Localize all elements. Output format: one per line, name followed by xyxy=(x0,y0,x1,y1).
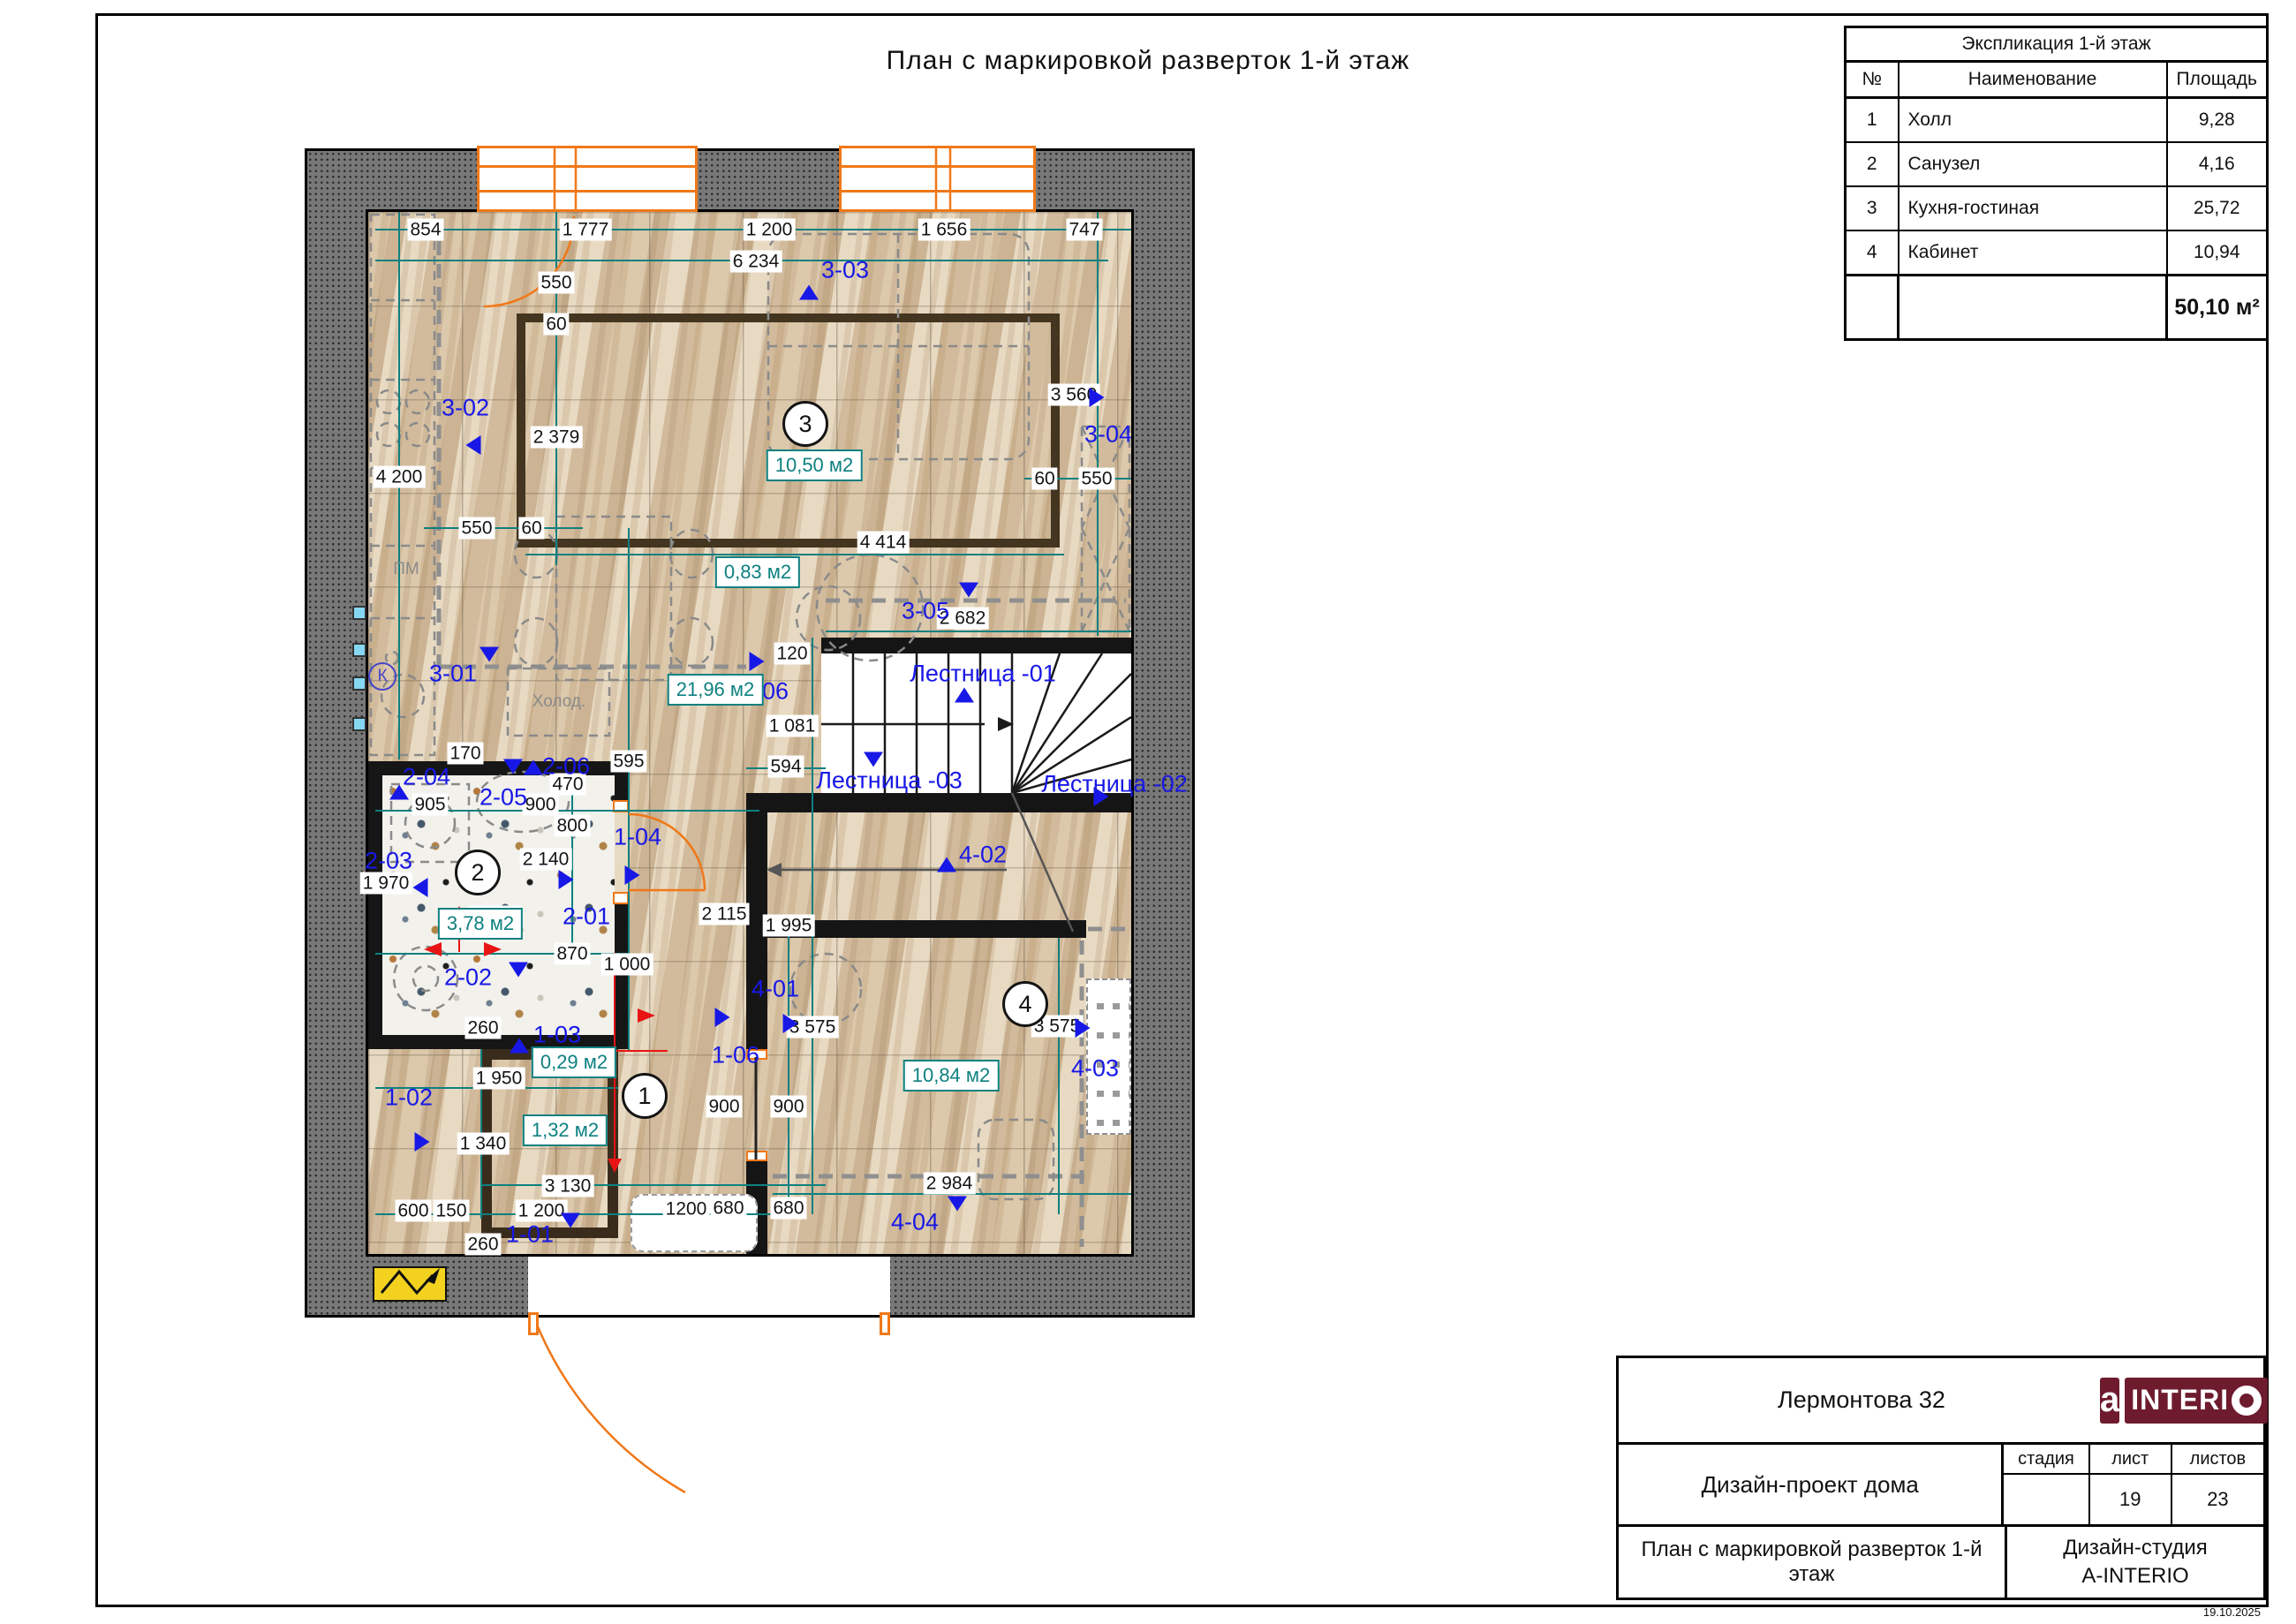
table-row: 4 Кабинет 10,94 xyxy=(1846,230,2268,276)
date-stamp: 19.10.2025 xyxy=(2155,1605,2261,1619)
table-row: 1 Холл 9,28 xyxy=(1846,98,2268,143)
title-block: Лермонтова 32 a INTERI Дизайн-проект дом… xyxy=(1616,1356,2266,1600)
total-row: 50,10 м² xyxy=(1846,276,2268,340)
drawing-sheet: План с маркировкой разверток 1-й этаж xyxy=(0,0,2296,1624)
table-row: 2 Санузел 4,16 xyxy=(1846,142,2268,186)
stage-column: стадия xyxy=(2004,1445,2089,1524)
a-interio-logo: a INTERI xyxy=(2104,1358,2263,1442)
logo-a-icon: a xyxy=(2100,1378,2119,1424)
project-address: Лермонтова 32 xyxy=(1619,1358,2104,1442)
col-header-num: № xyxy=(1846,62,1899,98)
logo-wordmark: INTERI xyxy=(2125,1378,2268,1424)
sheets-total: 23 xyxy=(2172,1475,2263,1524)
sheet-column: лист 19 xyxy=(2090,1445,2172,1524)
studio-name: Дизайн-студия A-INTERIO xyxy=(2007,1527,2263,1598)
col-header-name: Наименование xyxy=(1899,62,2167,98)
logo-o-icon xyxy=(2232,1386,2262,1416)
explication-table: Экспликация 1-й этаж № Наименование Площ… xyxy=(1844,26,2269,341)
explication-title: Экспликация 1-й этаж xyxy=(1846,27,2268,62)
sheet-number: 19 xyxy=(2090,1475,2171,1524)
table-row: 3 Кухня-гостиная 25,72 xyxy=(1846,186,2268,230)
sheets-column: листов 23 xyxy=(2172,1445,2263,1524)
col-header-area: Площадь xyxy=(2167,62,2268,98)
total-area: 50,10 м² xyxy=(2167,276,2268,340)
stage-value xyxy=(2004,1475,2088,1524)
drawing-title: План с маркировкой разверток 1-й этаж xyxy=(1619,1527,2007,1598)
project-name: Дизайн-проект дома xyxy=(1619,1445,2004,1524)
